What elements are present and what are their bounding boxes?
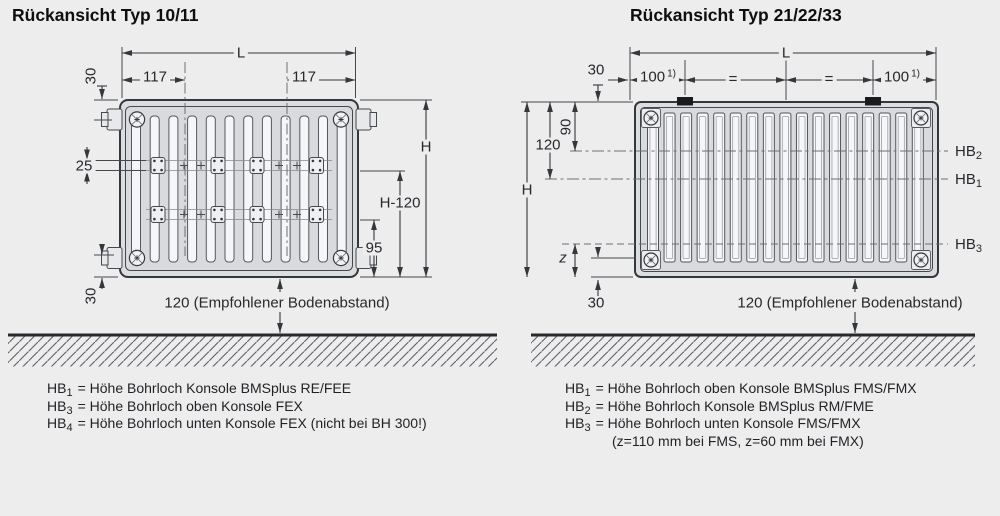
dim-30-top-right: 30 [588, 63, 605, 78]
floor-clearance-label-right: 120 (Empfohlener Bodenabstand) [737, 296, 962, 311]
legend-right-note: (z=110 mm bei FMS, z=60 mm bei FMX) [612, 434, 864, 448]
dim-H-right-diagram: H [519, 183, 536, 198]
dim-H-left-diagram: H [418, 140, 435, 155]
hb3-line-label: HB3 [953, 237, 984, 255]
ground-right [531, 335, 975, 367]
dim-L-right: L [779, 46, 793, 61]
hb1-line-label: HB1 [953, 172, 984, 190]
legend-right-row-1: HB1= Höhe Bohrloch oben Konsole BMSplus … [565, 381, 917, 399]
radiator-typ10-11-drawing [102, 62, 377, 277]
radiator-typ21-22-33-drawing [545, 97, 948, 277]
legend-left-row-2: HB3= Höhe Bohrloch oben Konsole FEX [47, 399, 303, 417]
title-typ10-11: Rückansicht Typ 10/11 [12, 5, 198, 26]
title-typ21-22-33: Rückansicht Typ 21/22/33 [630, 5, 842, 26]
dim-117-left: 117 [140, 70, 170, 85]
dim-H-minus-120: H-120 [377, 196, 424, 211]
ground-left [8, 335, 497, 367]
footnote-marker: 1) [911, 69, 920, 80]
dim-100-left: 1001) [637, 70, 679, 85]
dim-L-left: L [234, 46, 248, 61]
legend-right-row-3: HB3= Höhe Bohrloch unten Konsole FMS/FMX [565, 416, 861, 434]
dim-117-right: 117 [289, 70, 319, 85]
dim-120: 120 [532, 138, 563, 153]
legend-right-row-2: HB2= Höhe Bohrloch Konsole BMSplus RM/FM… [565, 399, 874, 417]
dim-25: 25 [73, 159, 96, 174]
floor-clearance-label-left: 120 (Empfohlener Bodenabstand) [164, 296, 389, 311]
dim-30-top-left: 30 [84, 65, 99, 88]
hb2-line-label: HB2 [953, 144, 984, 162]
legend-left-row-3: HB4= Höhe Bohrloch unten Konsole FEX (ni… [47, 416, 427, 434]
dim-90: 90 [559, 116, 574, 139]
dim-equal-right: = [822, 72, 837, 87]
dim-equal-left: = [726, 72, 741, 87]
legend-left-row-1: HB1= Höhe Bohrloch Konsole BMSplus RE/FE… [47, 381, 351, 399]
dim-30-bottom-left: 30 [84, 285, 99, 308]
datasheet-page: Rückansicht Typ 10/11 Rückansicht Typ 21… [0, 0, 1000, 516]
dim-z: z [556, 251, 570, 266]
dim-30-bottom-right: 30 [588, 296, 605, 311]
dim-100-right: 1001) [881, 70, 923, 85]
mounting-clip [677, 97, 693, 106]
dim-95: 95 [363, 241, 386, 256]
mounting-clip [865, 97, 881, 106]
footnote-marker: 1) [667, 69, 676, 80]
